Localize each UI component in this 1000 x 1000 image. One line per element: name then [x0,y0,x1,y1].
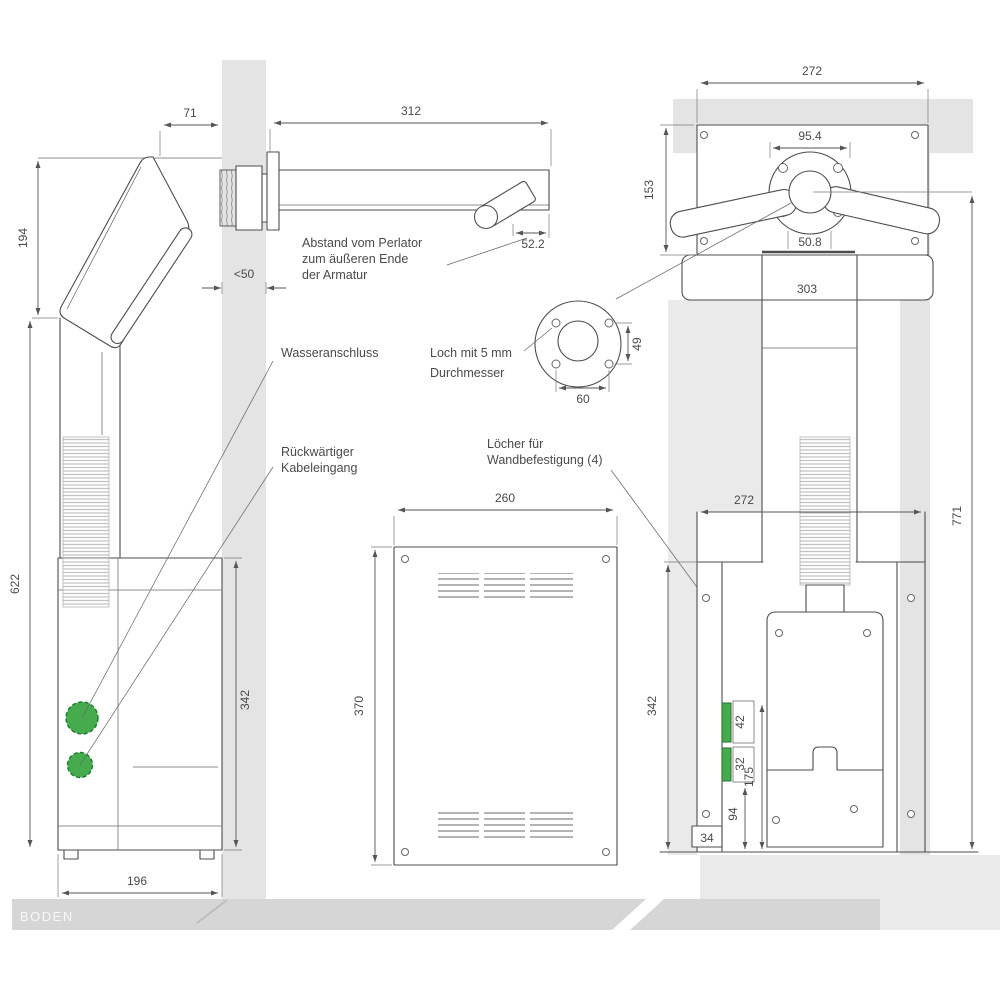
cover-screw [402,556,409,563]
dim-303-label: 303 [797,282,817,296]
perlator-leader-line [447,238,527,265]
dim-42-label: 42 [733,715,747,729]
perlator-note-line1: Abstand vom Perlator [302,236,422,250]
front-view: 260 370 Löcher für Wandbefestigung (4) [352,437,702,865]
dim-771-label: 771 [950,506,964,526]
dim-196-label: 196 [127,874,147,888]
dim-153-label: 153 [642,180,656,200]
wall-mount-note-line1: Löcher für [487,437,543,451]
dim-49-label: 49 [630,337,644,351]
vent-grille [530,573,573,601]
dim-342-side-label: 342 [238,690,252,710]
foot-left [64,850,78,859]
mounting-nut [236,166,262,230]
wall-niche-left-upper [668,300,762,512]
cover-screw [402,849,409,856]
detail-hole [605,319,613,327]
water-connection-label: Wasseranschluss [281,346,379,360]
dim-50-label: 50.8 [798,235,822,249]
dim-622-label: 622 [8,574,22,594]
hole-note-line2: Durchmesser [430,366,504,380]
hole-detail-view: 60 49 Loch mit 5 mm Durchmesser [430,301,644,406]
vent-grille [484,811,525,838]
dim-34-label: 34 [700,831,714,845]
detail-hole [552,360,560,368]
perlator-end-circle [475,206,498,229]
cable-entry-label-line1: Rückwärtiger [281,445,354,459]
floor-band [12,899,880,930]
dim-60-label: 60 [576,392,590,406]
panel-screw [773,817,780,824]
dim-342-back-label: 342 [645,696,659,716]
hose-coupler [806,585,844,612]
vent-grille [438,573,479,601]
perlator-note-line2: zum äußeren Ende [302,252,408,266]
hole-note-line1: Loch mit 5 mm [430,346,512,360]
plate-screw [701,132,708,139]
dim-272-back-label: 272 [734,493,754,507]
detail-outer-circle [535,301,621,387]
plate-screw [912,132,919,139]
wall-fixing-hole [703,811,710,818]
connector-a-green [722,703,731,742]
connector-b-green [722,748,731,781]
back-panel [767,612,883,847]
corrugated-hose-back [800,437,850,585]
collar-hole [834,164,843,173]
wall-niche-left-lower [668,512,697,855]
cable-entry-label-line2: Kabeleingang [281,461,358,475]
dim-370-label: 370 [352,696,366,716]
collar-hole [779,164,788,173]
panel-screw [776,630,783,637]
foot-right [200,850,214,859]
wall-flange [267,152,279,230]
detail-hole [605,360,613,368]
technical-drawing-page: BODEN [0,0,1000,1000]
dim-94-label: 94 [726,807,740,821]
dim-312-label: 312 [401,104,421,118]
dim-71-label: 71 [183,106,197,120]
cover-screw [603,556,610,563]
faucet-installation-drawing: BODEN [0,0,1000,1000]
dim-175-label: 175 [742,767,756,787]
wall-fixing-hole [703,595,710,602]
detail-hole [552,319,560,327]
perlator-note-line3: der Armatur [302,268,367,282]
wall-fixing-hole [908,595,915,602]
dim-wall-thickness-label: <50 [234,267,255,281]
dim-95-label: 95.4 [798,129,822,143]
plate-screw [912,238,919,245]
wall-fixing-hole [908,811,915,818]
panel-screw [864,630,871,637]
wall-mount-note-line2: Wandbefestigung (4) [487,453,603,467]
cover-screw [603,849,610,856]
vent-grille [530,811,573,838]
vent-grille [484,573,525,601]
panel-screw [851,806,858,813]
floor-label: BODEN [20,909,74,924]
corrugated-hose-side [63,437,109,607]
dim-260-label: 260 [495,491,515,505]
threaded-pipe [220,170,236,226]
dim-272-plan-label: 272 [802,64,822,78]
plate-screw [701,238,708,245]
dim-194-label: 194 [16,228,30,248]
vent-grille [438,811,479,838]
